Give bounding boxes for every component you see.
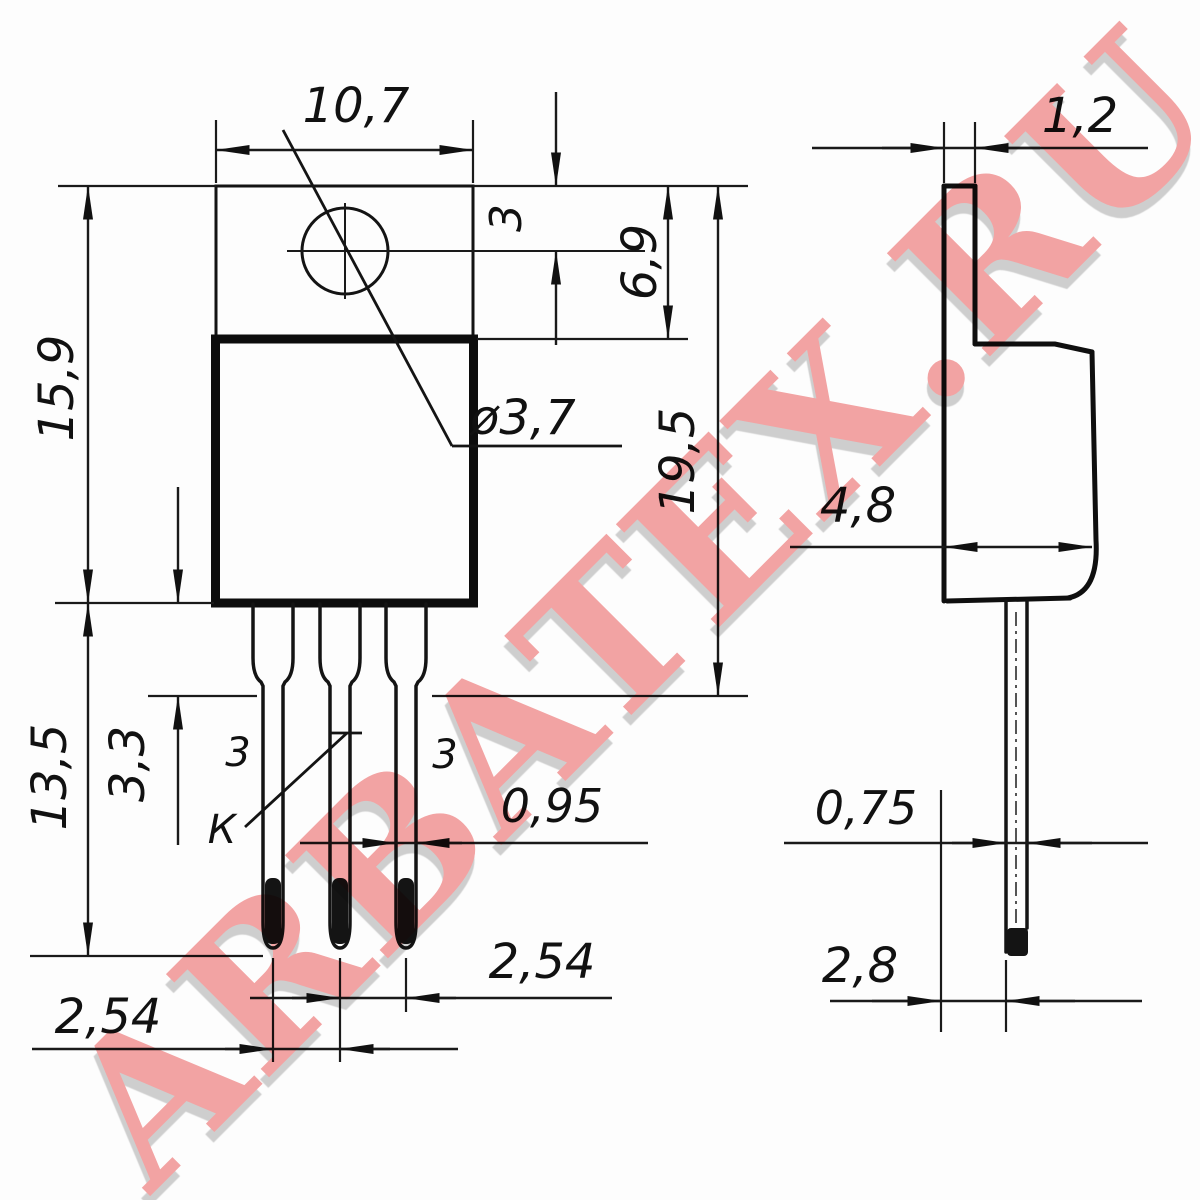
side-body-front-face (1068, 352, 1096, 598)
pin-label-middle: К (208, 807, 238, 853)
dim-lead-pitch-left-label: 2,54 (55, 989, 162, 1045)
screenshot-root: 10,7 15,9 13,5 3,3 3 (0, 0, 1200, 1200)
dim-lead-pitch-right-label: 2,54 (489, 934, 596, 990)
side-lead-tip (1007, 928, 1028, 956)
side-body-bottom (947, 598, 1070, 601)
dim-tab-thickness-label: 1,2 (1042, 88, 1118, 144)
dim-shoulder-length-label: 3,3 (100, 726, 156, 802)
front-body-outline (216, 339, 474, 603)
front-view: 10,7 15,9 13,5 3,3 3 (22, 78, 748, 1062)
side-view: 1,2 4,8 0,75 2,8 (784, 88, 1148, 1032)
dim-tab-height-label: 6,9 (612, 224, 668, 300)
lead-left-tip (265, 878, 281, 944)
dim-body-thickness: 4,8 (790, 478, 1092, 547)
side-lead (1006, 601, 1028, 956)
dim-lead-offset-label: 2,8 (822, 938, 898, 994)
technical-drawing: 10,7 15,9 13,5 3,3 3 (0, 0, 1200, 1200)
dim-lead-length: 13,5 (22, 603, 88, 956)
dim-tab-thickness: 1,2 (812, 88, 1148, 183)
dim-lead-width: 0,95 (300, 779, 648, 843)
dim-hole-diameter-label: ø3,7 (469, 390, 576, 446)
dim-package-height-label: 15,9 (29, 335, 85, 442)
dim-lead-thickness-label: 0,75 (815, 781, 917, 835)
dim-lead-thickness: 0,75 (784, 781, 1148, 843)
dim-body-width-label: 10,7 (303, 78, 410, 134)
dim-top-to-shoulder-label: 19,5 (650, 408, 706, 515)
dim-hole-offset-label: 3 (481, 204, 532, 232)
hole-diameter-callout: ø3,7 (283, 130, 622, 446)
lead-right-tip (398, 878, 414, 944)
dim-hole-offset: 3 (481, 92, 556, 345)
side-body-step (975, 344, 1092, 352)
dim-package-height: 15,9 (29, 186, 88, 603)
lead-middle-tip (332, 878, 348, 944)
lead-left (253, 604, 293, 948)
dim-body-thickness-label: 4,8 (820, 478, 896, 534)
dim-lead-length-label: 13,5 (22, 724, 78, 831)
dim-lead-pitch-right: 2,54 (250, 934, 612, 998)
dim-body-width: 10,7 (216, 78, 473, 183)
lead-right (386, 604, 426, 948)
dim-lead-width-label: 0,95 (501, 779, 603, 833)
lead-middle (320, 604, 360, 948)
pin-label-right: 3 (432, 732, 457, 778)
pin-label-left: 3 (225, 730, 250, 776)
